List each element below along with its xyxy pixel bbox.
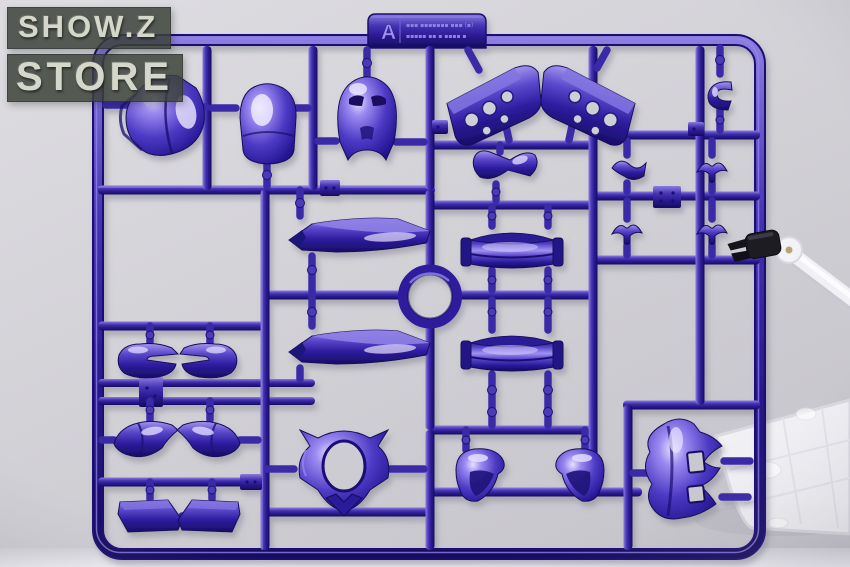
watermark-store: STORE: [7, 54, 183, 102]
product-photo-stage: A ▪▪▪ ▪▪▪▪▪▪▪ ▪▪▪ (▪) ▪▪▪▪▪ ▪▪ ▪ ▪▪▪▪ ▪: [0, 0, 850, 567]
watermark-showz: SHOW.Z: [7, 7, 171, 49]
